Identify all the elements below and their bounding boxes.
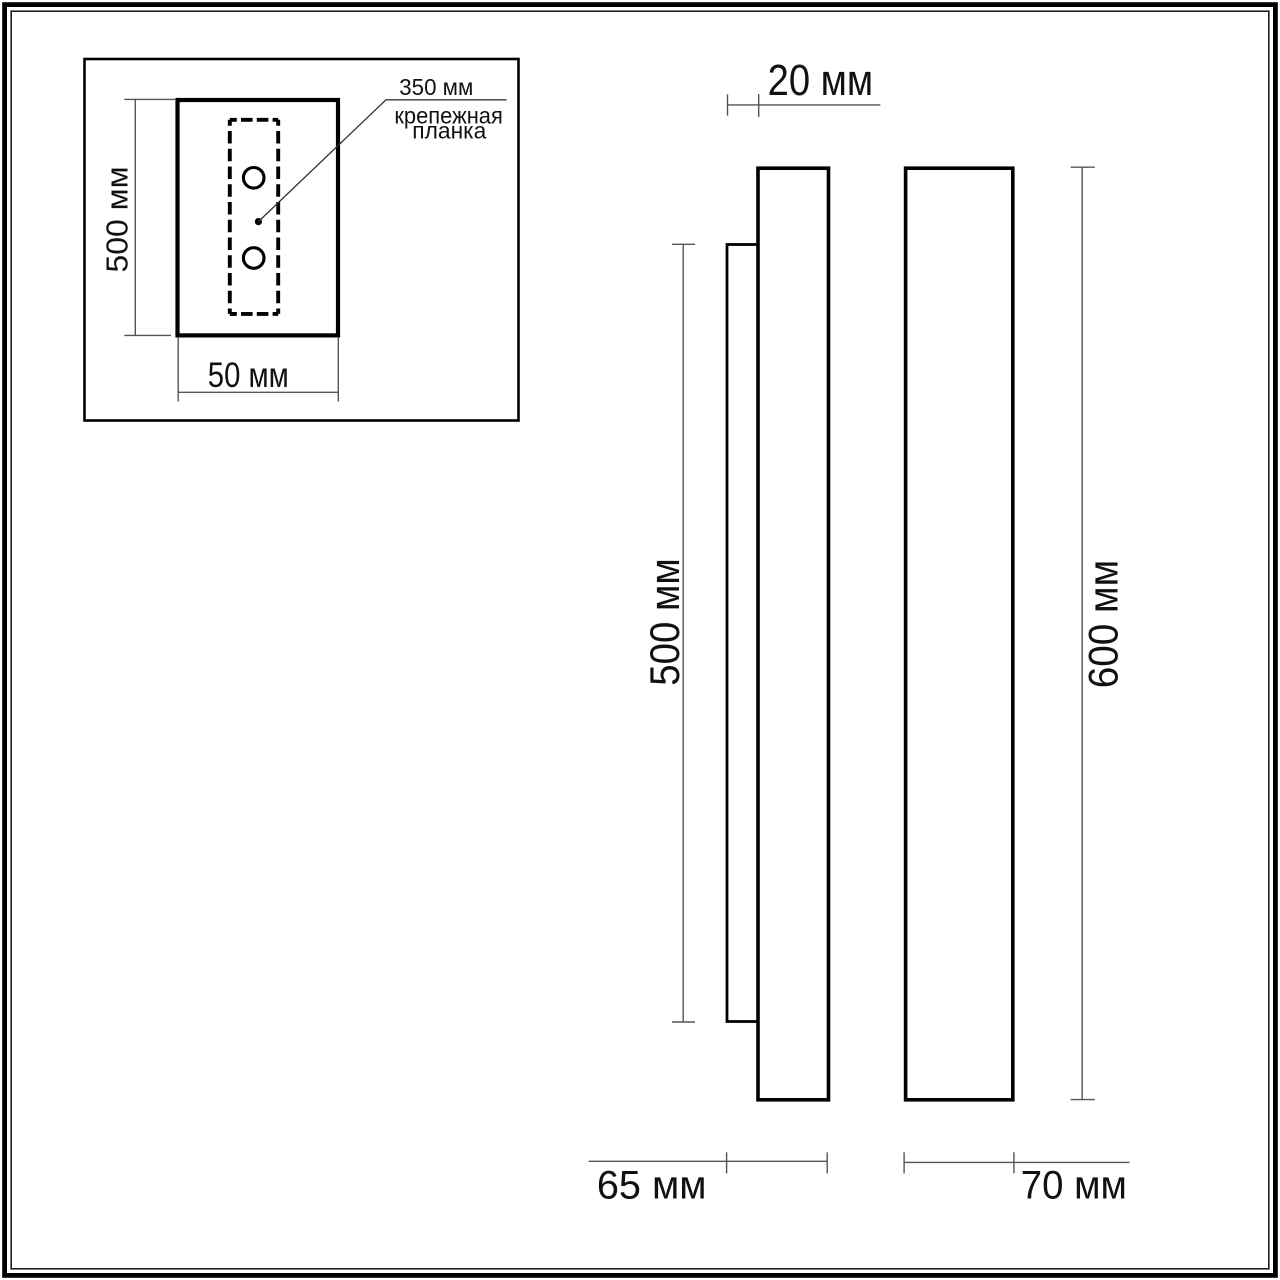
svg-text:65 мм: 65 мм xyxy=(597,1163,707,1207)
svg-text:20 мм: 20 мм xyxy=(768,56,874,105)
svg-text:500 мм: 500 мм xyxy=(100,167,135,273)
svg-text:планка: планка xyxy=(412,117,487,143)
svg-text:50 мм: 50 мм xyxy=(208,356,289,395)
svg-text:500 мм: 500 мм xyxy=(641,558,688,686)
svg-text:350 мм: 350 мм xyxy=(399,74,473,100)
svg-text:600 мм: 600 мм xyxy=(1080,560,1127,689)
svg-text:70 мм: 70 мм xyxy=(1021,1163,1127,1207)
